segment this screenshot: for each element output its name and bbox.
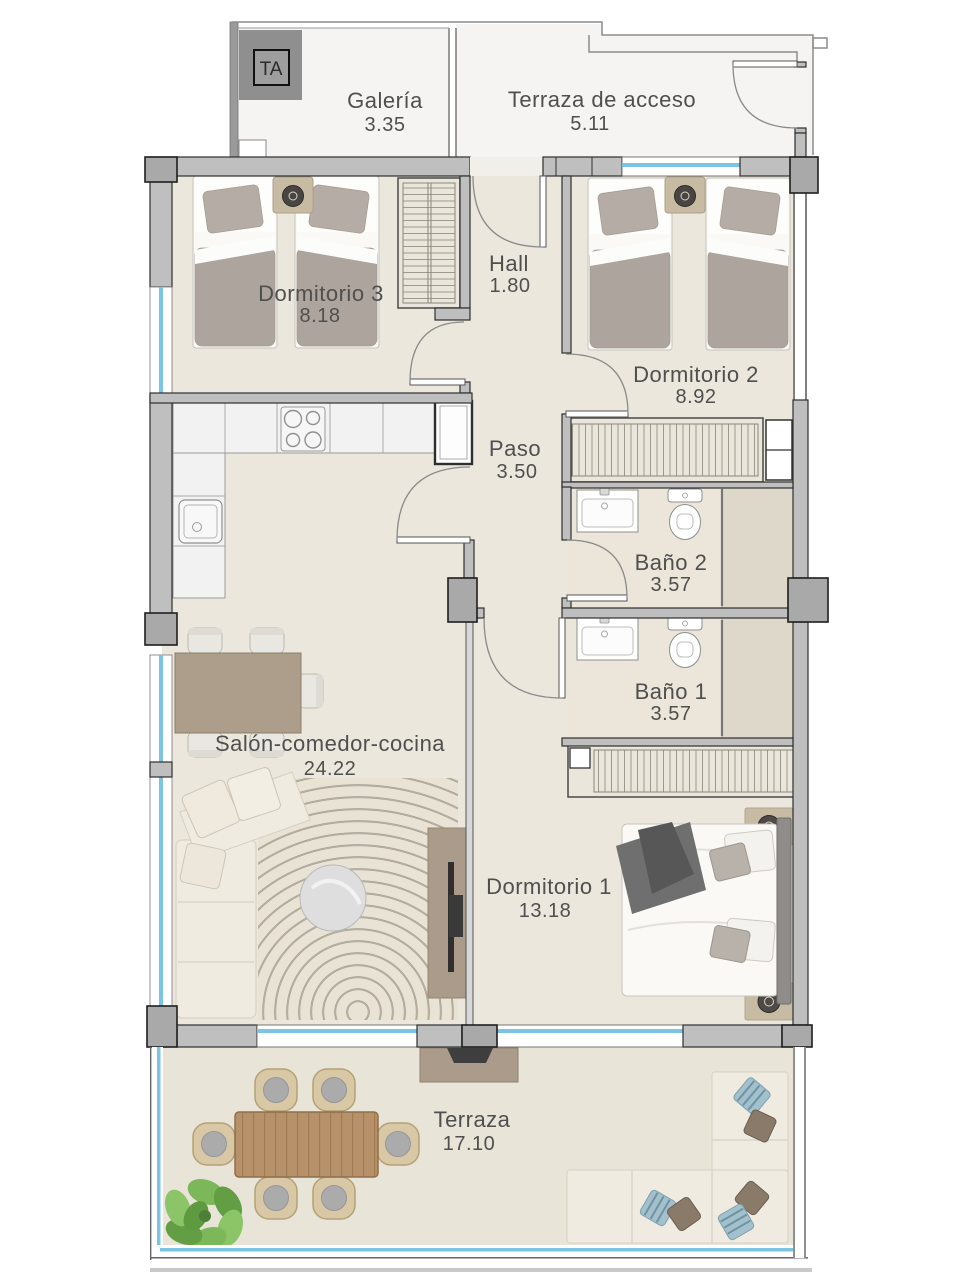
terrace-wall-right [793,1047,806,1258]
wall-top-right [740,157,795,176]
floor-plan-svg: TA [0,0,960,1280]
label-paso-name: Paso [489,436,541,461]
floor-plan-canvas: TA [0,0,960,1280]
hall-door-opening [470,157,543,176]
tv-body [449,895,463,937]
dorm3-door-leaf [410,379,465,385]
label-terraza-acceso-area: 5.11 [570,113,609,135]
headboard [777,818,791,1004]
bedside-console [273,177,313,213]
hall-door-leaf [540,176,546,247]
label-galeria-area: 3.35 [365,114,406,136]
twin-bed [706,178,790,350]
wall-right-low [793,622,808,1025]
wall-bottom-3 [683,1025,782,1047]
wardrobe-dorm1-box [570,748,590,768]
terrace-tv [447,1048,493,1063]
bano2-door-leaf [567,595,627,601]
kitchen-sink [179,500,222,543]
wall-hall-dorm3 [460,176,470,308]
pillar [147,1006,177,1047]
wall-right-mid [793,400,808,578]
ta-label: TA [260,59,283,80]
wall-paso-dorm2 [562,176,571,353]
wicker-chair [377,1123,419,1165]
boundary-notch [813,38,827,48]
wall-bano1-bano2 [562,608,793,618]
label-dorm1-area: 13.18 [519,900,572,922]
wall-left-1 [150,180,172,287]
window-bottom-dorm1 [497,1025,683,1047]
label-bano2-area: 3.57 [651,574,692,596]
label-salon-area: 24.22 [304,758,357,780]
window-mullion [150,762,172,777]
label-hall-name: Hall [489,251,529,276]
dining-chair [250,628,284,654]
terrace-table [235,1112,378,1177]
wall-top-left [150,157,470,176]
wall-left-2 [150,395,172,615]
dorm1-door-leaf [559,618,565,698]
wall-bano2-left [562,487,571,540]
slab-edge [150,1268,812,1272]
wardrobe-ledge [435,308,470,320]
sink-bano2 [577,487,638,532]
sink-bano1 [577,615,638,660]
label-salon-name: Salón-comedor-cocina [215,731,445,756]
label-dorm3-name: Dormitorio 3 [258,281,384,306]
twin-bed [588,178,672,350]
pillar [462,1025,497,1047]
label-dorm2-name: Dormitorio 2 [633,362,759,387]
label-terraza-name: Terraza [434,1107,511,1132]
pillar [790,157,818,193]
label-dorm3-area: 8.18 [300,305,341,327]
galeria-left-bar [230,22,238,160]
entrance-door-leaf [733,61,797,67]
entrance-wall-stub [795,133,806,157]
wall-paso-wardrobe2 [562,414,571,487]
wall-top-mid [543,157,622,176]
label-paso-area: 3.50 [497,461,538,483]
label-bano2-name: Baño 2 [635,550,708,575]
wall-paso-salon [464,540,474,578]
window-bottom-salon [257,1025,417,1047]
label-dorm2-area: 8.92 [676,386,717,408]
dorm2-door-leaf [566,411,628,417]
label-bano1-name: Baño 1 [635,679,708,704]
wicker-chair [313,1069,355,1111]
dining-table [175,653,301,733]
toilet-bano2 [668,489,702,540]
label-terraza-acceso-name: Terraza de acceso [508,87,696,112]
toilet-bano1 [668,617,702,668]
pillar [145,613,177,645]
entrance-jamb-bottom [795,128,806,133]
wall-wardrobe2-bano2 [562,482,793,488]
wicker-chair [255,1069,297,1111]
dining-chair [188,628,222,654]
wall-jamb-dorm1-door [477,608,484,618]
label-galeria-name: Galería [347,88,423,113]
wall-bottom-2 [417,1025,462,1047]
pillar [448,578,477,622]
wicker-chair [255,1177,297,1219]
salon-door-leaf [397,537,470,543]
wall-right-thin [793,193,807,400]
wall-bottom-1 [177,1025,257,1047]
accent-pillow [709,925,750,963]
bano2-shower [722,487,793,608]
fridge [435,401,472,464]
pillar [788,578,828,622]
pillar [145,157,177,182]
wicker-chair [193,1123,235,1165]
twin-bed [193,176,277,348]
dormitorio1-furniture [616,808,793,1020]
pillar [782,1025,812,1047]
wicker-chair [313,1177,355,1219]
bano1-shower [722,618,793,738]
bedside-console [665,177,705,213]
wall-salon-dorm1 [466,622,473,1025]
sofa-cushion [179,842,226,889]
label-dorm1-name: Dormitorio 1 [486,874,612,899]
wall-bano1-wardrobe1 [562,738,793,746]
wall-kitchen-top [150,393,472,403]
label-terraza-area: 17.10 [443,1133,496,1155]
label-hall-area: 1.80 [490,275,531,297]
label-bano1-area: 3.57 [651,703,692,725]
